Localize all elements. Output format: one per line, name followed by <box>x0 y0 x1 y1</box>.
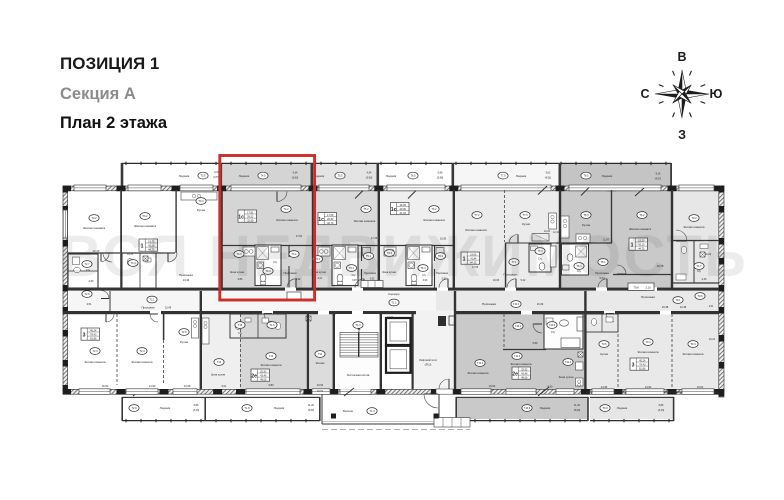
svg-text:11,20: 11,20 <box>308 404 315 407</box>
svg-text:Зона кухни: Зона кухни <box>211 373 226 377</box>
svg-text:16,52: 16,52 <box>317 390 324 393</box>
svg-text:2е: 2е <box>512 371 518 377</box>
svg-text:Лоджия: Лоджия <box>160 406 171 410</box>
svg-text:Секция А: Секция А <box>60 85 136 103</box>
svg-text:3: 3 <box>83 332 86 338</box>
svg-text:78,43: 78,43 <box>90 334 97 337</box>
svg-text:Прихожая: Прихожая <box>142 306 155 310</box>
svg-text:Т2.2: Т2.2 <box>91 217 97 220</box>
svg-text:16,52: 16,52 <box>317 383 324 387</box>
svg-text:Лоджия: Лоджия <box>540 406 551 410</box>
svg-text:6,86: 6,86 <box>659 404 664 407</box>
svg-text:4,34: 4,34 <box>367 172 372 175</box>
svg-text:Прихожая: Прихожая <box>482 302 496 306</box>
svg-text:81,86: 81,86 <box>639 368 646 371</box>
svg-text:ПОЗИЦИЯ 1: ПОЗИЦИЯ 1 <box>60 54 159 73</box>
svg-text:13,35: 13,35 <box>601 385 608 389</box>
svg-text:Жилая комната: Жилая комната <box>261 363 282 367</box>
svg-text:Жилая: Жилая <box>316 361 325 365</box>
svg-text:14,90: 14,90 <box>149 384 156 388</box>
svg-text:Ю: Ю <box>710 87 723 101</box>
svg-text:14,02: 14,02 <box>387 316 394 319</box>
svg-text:Прихожая: Прихожая <box>641 295 655 299</box>
svg-text:Жилая комната: Жилая комната <box>468 371 489 375</box>
svg-text:(3,93): (3,93) <box>366 177 373 180</box>
svg-text:Т8.2: Т8.2 <box>639 214 645 217</box>
svg-text:(2,98): (2,98) <box>437 177 444 180</box>
svg-text:25,92: 25,92 <box>260 370 267 373</box>
svg-text:Т10.4: Т10.4 <box>565 361 572 364</box>
svg-text:2е: 2е <box>251 373 257 379</box>
svg-text:9,80: 9,80 <box>268 383 274 387</box>
svg-text:5,96: 5,96 <box>438 172 443 175</box>
svg-text:Кухня: Кухня <box>180 340 189 344</box>
svg-text:Т5.5: Т5.5 <box>337 175 343 178</box>
svg-text:Жилая комната: Жилая комната <box>423 218 445 222</box>
svg-text:Коридор: Коридор <box>388 292 399 296</box>
svg-text:43,46: 43,46 <box>521 373 528 376</box>
svg-text:Лоджия: Лоджия <box>516 174 527 178</box>
svg-text:Т9.9: Т9.9 <box>602 407 608 410</box>
svg-text:Т10.5: Т10.5 <box>549 324 556 327</box>
svg-text:Т7.5: Т7.5 <box>500 175 506 178</box>
svg-text:Лоджия: Лоджия <box>274 406 285 410</box>
svg-text:Т9.1: Т9.1 <box>675 299 681 302</box>
svg-text:(5,60): (5,60) <box>308 409 315 412</box>
svg-text:9,14: 9,14 <box>656 173 661 176</box>
svg-text:Т13: Т13 <box>269 355 274 358</box>
svg-text:Кухня: Кухня <box>600 352 608 356</box>
svg-text:Жилая комната: Жилая комната <box>276 218 298 222</box>
svg-text:Зона кухни: Зона кухни <box>559 375 574 379</box>
svg-text:Лоджия: Лоджия <box>617 406 628 410</box>
svg-text:Т8.3: Т8.3 <box>583 214 589 217</box>
svg-text:6,01: 6,01 <box>222 385 227 388</box>
svg-text:Т4.2: Т4.2 <box>283 208 289 211</box>
svg-text:Т5.2: Т5.2 <box>363 208 369 211</box>
svg-text:1с: 1с <box>318 217 324 223</box>
svg-text:1с: 1с <box>391 207 397 213</box>
svg-text:14,90: 14,90 <box>645 385 652 389</box>
svg-text:10,48: 10,48 <box>662 305 669 309</box>
svg-text:Т1.3: Т1.3 <box>355 324 361 327</box>
svg-text:Жилая комната: Жилая комната <box>683 352 704 356</box>
svg-text:Т1.4: Т1.4 <box>369 410 375 413</box>
svg-text:16,52: 16,52 <box>697 385 704 389</box>
svg-text:Балкон: Балкон <box>343 409 353 413</box>
svg-text:29,06: 29,06 <box>400 208 407 211</box>
svg-text:Т2.4: Т2.4 <box>139 350 145 353</box>
svg-text:Т1.6: Т1.6 <box>244 407 250 410</box>
svg-text:Т3.2: Т3.2 <box>142 215 148 218</box>
svg-text:Жилая комната: Жилая комната <box>132 360 153 364</box>
svg-text:Т10.1: Т10.1 <box>515 325 522 328</box>
svg-text:Жилая комната: Жилая комната <box>511 362 532 366</box>
svg-text:Т2.1: Т2.1 <box>149 299 155 302</box>
svg-text:9,02: 9,02 <box>546 172 551 175</box>
svg-text:Т2.5: Т2.5 <box>181 331 187 334</box>
svg-text:4,34: 4,34 <box>293 172 298 175</box>
svg-text:Т1.1: Т1.1 <box>391 302 397 305</box>
svg-text:(4,51): (4,51) <box>545 177 552 180</box>
svg-text:Т1.5: Т1.5 <box>269 324 275 327</box>
svg-text:Лоджия: Лоджия <box>239 174 250 178</box>
svg-text:Т7.3: Т7.3 <box>522 214 528 217</box>
svg-text:Т10.6: Т10.6 <box>524 407 531 410</box>
svg-text:49,06: 49,06 <box>521 377 528 380</box>
svg-text:Т9.4: Т9.4 <box>645 341 651 344</box>
svg-text:(3,93): (3,93) <box>292 177 299 180</box>
svg-text:Лоджия: Лоджия <box>602 174 613 178</box>
svg-text:З: З <box>678 128 686 142</box>
svg-text:Т2.6: Т2.6 <box>84 293 90 296</box>
svg-text:Т10.3: Т10.3 <box>514 355 521 358</box>
svg-text:Т3.3: Т3.3 <box>198 200 204 203</box>
svg-text:Т9.6: Т9.6 <box>697 295 703 298</box>
svg-text:5,89: 5,89 <box>533 342 538 345</box>
svg-text:6,86: 6,86 <box>194 404 199 407</box>
svg-text:(5,60): (5,60) <box>574 409 581 412</box>
svg-text:Жилая комната: Жилая комната <box>638 350 659 354</box>
svg-text:16,52: 16,52 <box>489 384 496 388</box>
svg-text:(Л6.3): (Л6.3) <box>425 364 432 367</box>
svg-text:Т3.5: Т3.5 <box>200 175 206 178</box>
svg-text:(4,57): (4,57) <box>655 178 662 181</box>
svg-text:Т9.5: Т9.5 <box>601 343 607 346</box>
svg-text:10,49: 10,49 <box>537 302 544 306</box>
svg-text:Жилая комната: Жилая комната <box>354 219 376 223</box>
svg-text:29,52: 29,52 <box>327 218 334 221</box>
svg-text:Лифтовой холл: Лифтовой холл <box>419 359 437 362</box>
svg-text:43,46: 43,46 <box>260 375 267 378</box>
svg-text:3,51: 3,51 <box>86 302 92 306</box>
svg-text:Кухня: Кухня <box>197 208 206 212</box>
svg-text:В: В <box>677 50 686 64</box>
svg-text:Т6.2: Т6.2 <box>431 208 437 211</box>
svg-text:1,51: 1,51 <box>709 305 714 308</box>
svg-text:(3,43): (3,43) <box>658 409 665 412</box>
svg-text:Т14: Т14 <box>217 361 222 364</box>
svg-text:Т12: Т12 <box>318 353 323 356</box>
svg-text:Лестничная клетка: Лестничная клетка <box>347 373 370 377</box>
svg-text:32,69: 32,69 <box>247 220 254 223</box>
svg-text:13,35: 13,35 <box>184 384 191 388</box>
svg-text:Лоджия: Лоджия <box>179 174 190 178</box>
svg-text:Т8.5: Т8.5 <box>583 175 589 178</box>
svg-text:45,24: 45,24 <box>90 329 97 332</box>
svg-text:Т15: Т15 <box>238 324 243 327</box>
svg-text:17,05: 17,05 <box>327 214 334 217</box>
svg-text:16,22: 16,22 <box>709 338 716 341</box>
svg-text:Т10.1: Т10.1 <box>513 303 520 306</box>
svg-text:16,52: 16,52 <box>102 384 109 388</box>
svg-text:31,04: 31,04 <box>400 212 407 215</box>
svg-text:Т10.2: Т10.2 <box>477 362 484 365</box>
svg-text:17,81: 17,81 <box>247 211 254 214</box>
svg-text:45,24: 45,24 <box>639 359 646 362</box>
svg-text:10,49: 10,49 <box>165 307 172 310</box>
svg-text:Т9.2: Т9.2 <box>691 217 697 220</box>
svg-text:16,95: 16,95 <box>400 204 407 207</box>
svg-text:Т2.9: Т2.9 <box>131 407 137 410</box>
svg-text:78,43: 78,43 <box>639 364 646 367</box>
svg-text:29,52: 29,52 <box>247 216 254 219</box>
svg-text:(3,43): (3,43) <box>193 409 200 412</box>
svg-text:Лоджия: Лоджия <box>386 174 397 178</box>
svg-text:Т9.3: Т9.3 <box>690 343 696 346</box>
svg-text:10,48: 10,48 <box>680 306 687 309</box>
svg-text:Т2.3: Т2.3 <box>92 350 98 353</box>
svg-text:План 2 этажа: План 2 этажа <box>60 114 168 132</box>
svg-text:1с: 1с <box>238 214 244 220</box>
svg-text:Жилая комната: Жилая комната <box>85 360 106 364</box>
svg-text:Т7.2: Т7.2 <box>474 214 480 217</box>
svg-text:25,92: 25,92 <box>521 368 528 371</box>
svg-text:С: С <box>640 87 649 101</box>
svg-text:49,06: 49,06 <box>260 379 267 382</box>
svg-text:11,20: 11,20 <box>574 404 581 407</box>
svg-text:Т6.5: Т6.5 <box>410 175 416 178</box>
svg-text:Т4.5: Т4.5 <box>260 175 266 178</box>
svg-text:81,86: 81,86 <box>90 338 97 341</box>
svg-text:3: 3 <box>632 362 635 368</box>
svg-text:ВСЯ НЕДВИЖИМОСТЬ: ВСЯ НЕДВИЖИМОСТЬ <box>60 224 748 289</box>
